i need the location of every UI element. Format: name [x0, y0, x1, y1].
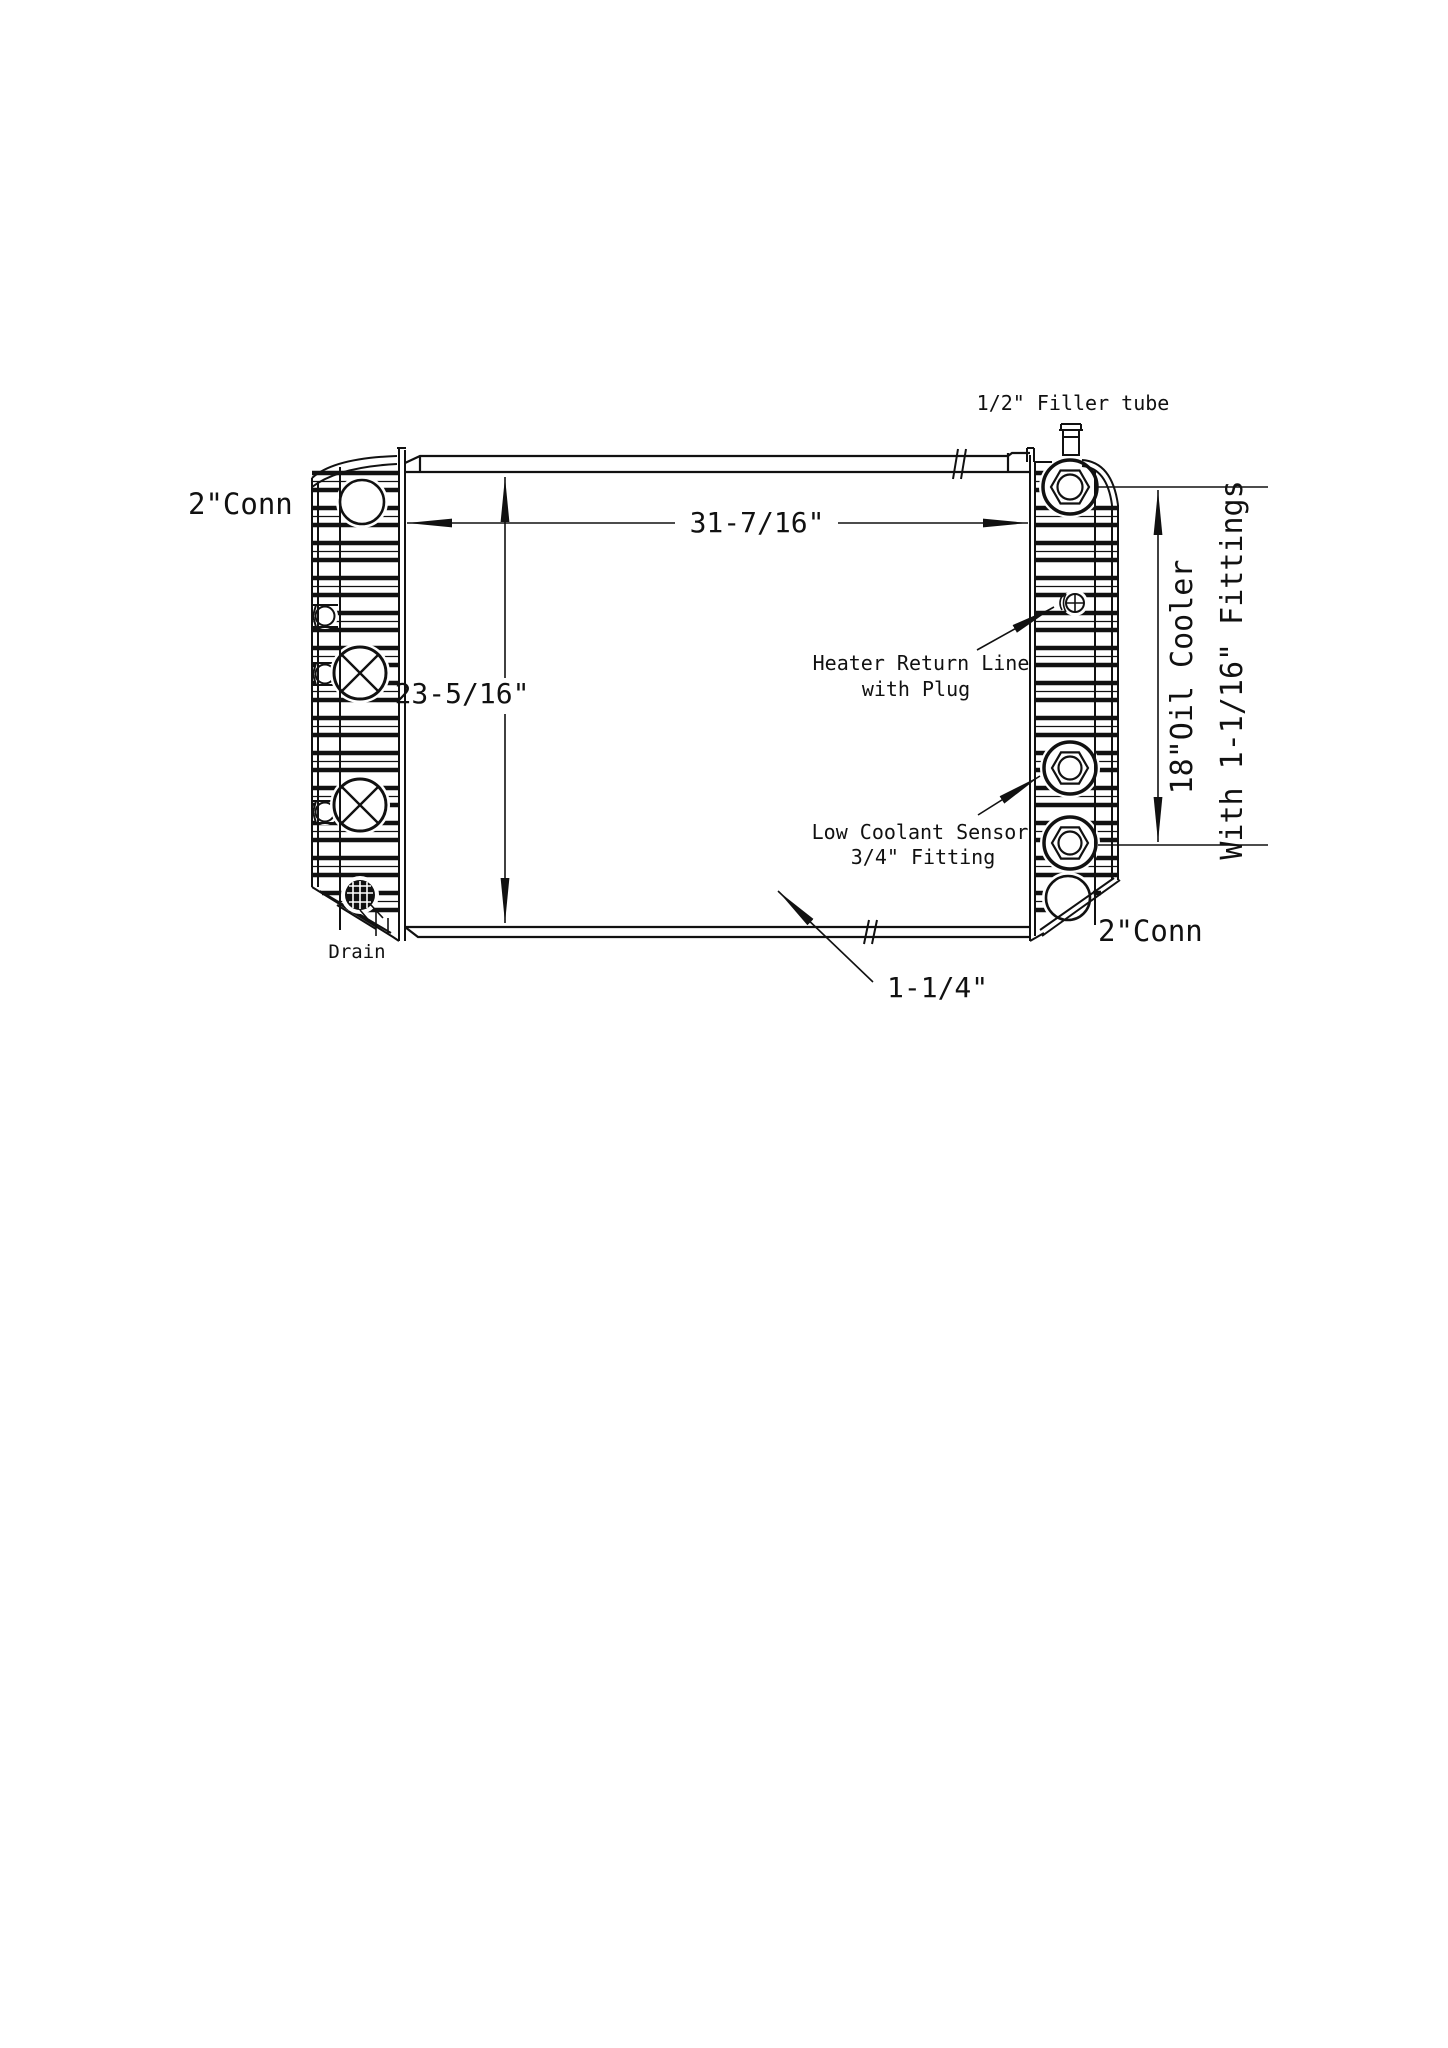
dim-core-width-label: 31-7/16" [690, 506, 825, 539]
dimension-core-width: 31-7/16" [407, 506, 1028, 539]
conn-bottom-right-label: 2"Conn [1098, 914, 1203, 948]
dimension-core-height: 23-5/16" [395, 477, 530, 923]
drain-label: Drain [328, 941, 385, 963]
bottom-plate [405, 927, 1030, 937]
low-coolant-label-line2: 3/4" Fitting [851, 845, 996, 869]
oil-cooler-fitting-lower [1040, 813, 1100, 873]
conn-top-left-label: 2"Conn [188, 487, 293, 521]
bottom-plate-break-ticks [864, 920, 877, 944]
low-coolant-label-line1: Low Coolant Sensor [812, 820, 1029, 844]
fittings-vertical-label: With 1-1/16" Fittings [1215, 480, 1250, 859]
heater-return-label-line2: with Plug [862, 677, 970, 701]
top-plate-break-ticks [953, 449, 966, 479]
heater-return-label-line1: Heater Return Line [813, 651, 1030, 675]
left-tank [312, 448, 406, 941]
left-conn-opening [340, 480, 384, 524]
filler-tube-label: 1/2" Filler tube [977, 391, 1170, 415]
oil-cooler-vertical-label: 18"Oil Cooler [1165, 560, 1200, 795]
radiator-diagram: 31-7/16" 23-5/16" 1/2" Filler tube 2"Con… [0, 0, 1448, 2048]
top-plate [405, 453, 1030, 472]
filler-tube [1059, 424, 1083, 455]
drawing-page: 31-7/16" 23-5/16" 1/2" Filler tube 2"Con… [0, 0, 1448, 2048]
outlet-size-label: 1-1/4" [887, 971, 988, 1004]
oil-cooler-fitting-upper [1040, 738, 1100, 798]
top-oil-fitting [1039, 456, 1101, 518]
right-tank [1027, 424, 1120, 941]
dim-core-height-label: 23-5/16" [395, 677, 530, 710]
